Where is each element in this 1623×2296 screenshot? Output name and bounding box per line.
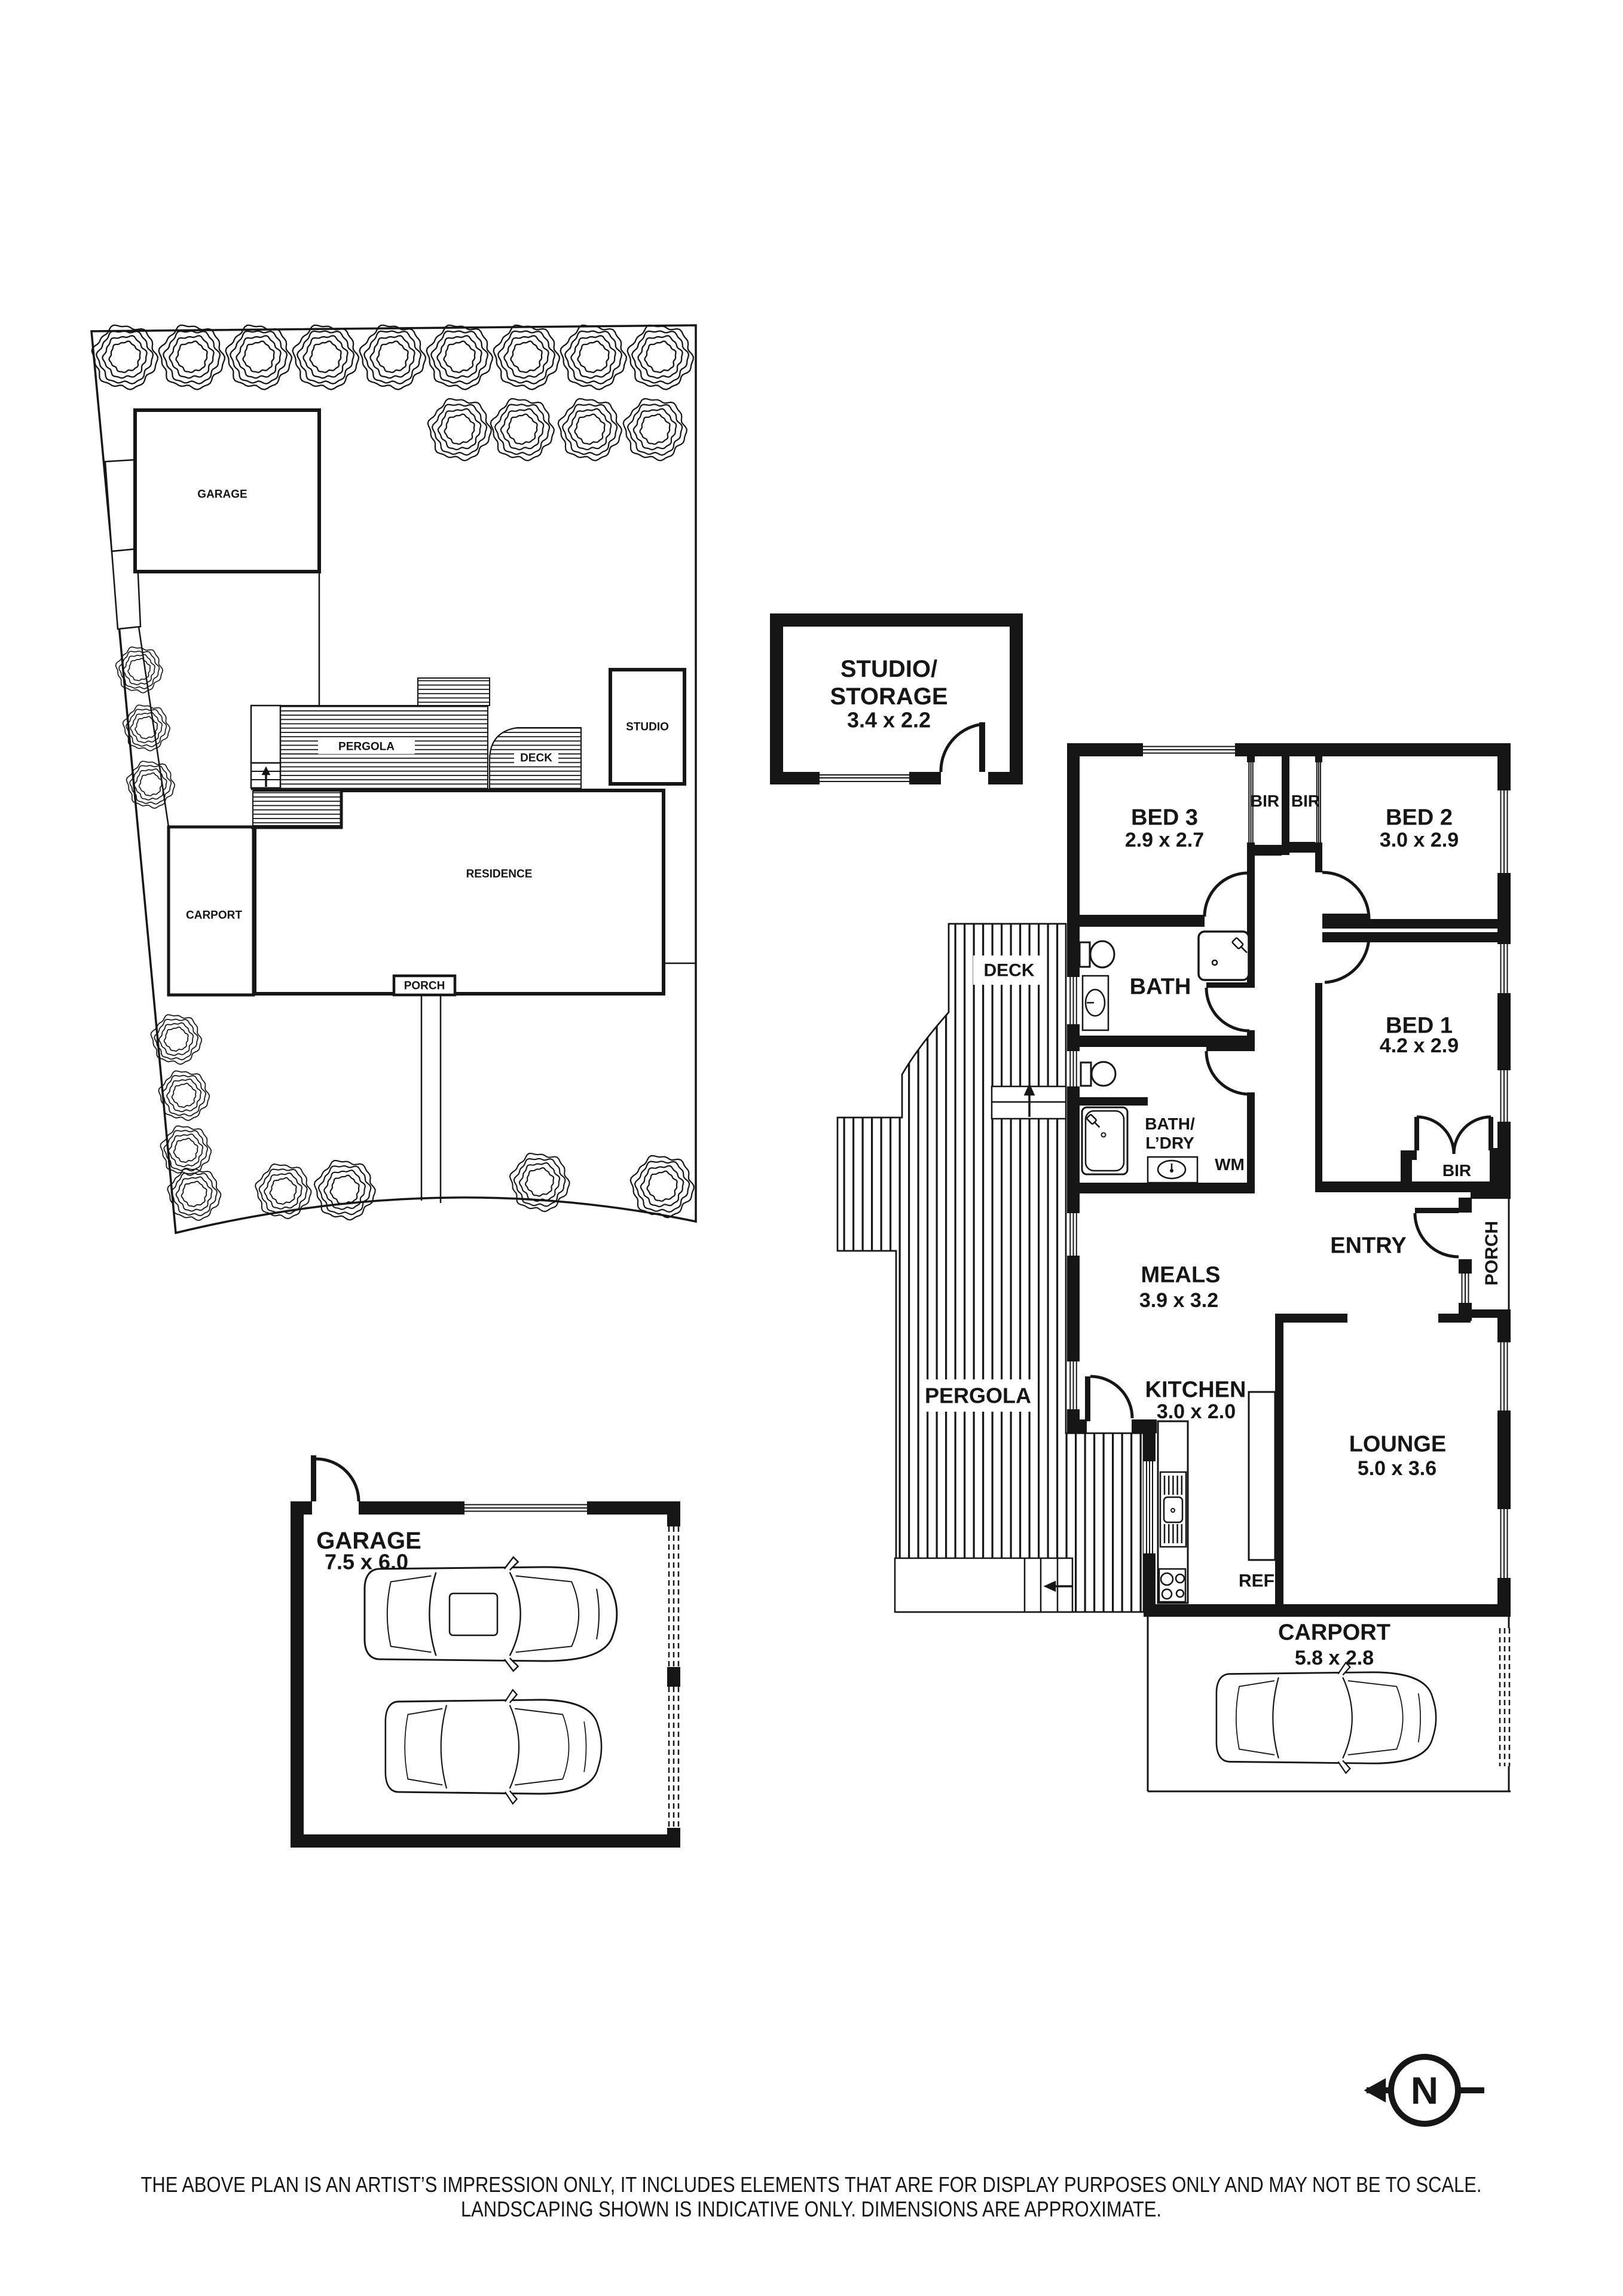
svg-text:3.0 x 2.0: 3.0 x 2.0 (1157, 1400, 1236, 1423)
svg-text:BIR: BIR (1251, 792, 1279, 810)
svg-text:STUDIO/: STUDIO/ (840, 656, 937, 682)
svg-text:5.0 x 3.6: 5.0 x 3.6 (1358, 1457, 1436, 1480)
svg-text:DECK: DECK (520, 752, 552, 765)
svg-text:REF: REF (1239, 1571, 1274, 1591)
svg-text:LOUNGE: LOUNGE (1349, 1431, 1447, 1457)
svg-text:BATH/: BATH/ (1145, 1115, 1195, 1133)
svg-text:PORCH: PORCH (1482, 1221, 1502, 1286)
svg-text:KITCHEN: KITCHEN (1145, 1377, 1246, 1402)
svg-text:THE ABOVE PLAN IS AN ARTIST’S: THE ABOVE PLAN IS AN ARTIST’S IMPRESSION… (141, 2172, 1482, 2197)
svg-text:CARPORT: CARPORT (1278, 1620, 1390, 1645)
svg-text:GARAGE: GARAGE (197, 488, 247, 501)
svg-text:3.9 x 3.2: 3.9 x 3.2 (1139, 1289, 1218, 1312)
svg-text:PERGOLA: PERGOLA (925, 1384, 1031, 1408)
svg-text:5.8 x 2.8: 5.8 x 2.8 (1295, 1647, 1374, 1669)
svg-text:RESIDENCE: RESIDENCE (466, 868, 533, 881)
svg-text:WM: WM (1215, 1155, 1245, 1174)
svg-text:DECK: DECK (983, 961, 1034, 981)
svg-text:PORCH: PORCH (404, 980, 445, 993)
svg-text:MEALS: MEALS (1141, 1262, 1221, 1287)
svg-text:BED 2: BED 2 (1386, 805, 1453, 830)
svg-text:4.2 x 2.9: 4.2 x 2.9 (1380, 1034, 1459, 1057)
svg-text:BIR: BIR (1442, 1161, 1471, 1180)
svg-text:LANDSCAPING SHOWN IS INDICATIV: LANDSCAPING SHOWN IS INDICATIVE ONLY. DI… (461, 2197, 1162, 2221)
svg-text:ENTRY: ENTRY (1330, 1233, 1406, 1258)
svg-text:BIR: BIR (1291, 792, 1320, 810)
svg-text:L’DRY: L’DRY (1145, 1134, 1194, 1152)
svg-text:PERGOLA: PERGOLA (338, 741, 395, 753)
svg-text:2.9 x 2.7: 2.9 x 2.7 (1125, 829, 1204, 851)
svg-text:STORAGE: STORAGE (830, 683, 947, 710)
svg-text:BED 3: BED 3 (1131, 805, 1198, 830)
svg-text:3.4 x 2.2: 3.4 x 2.2 (847, 708, 931, 732)
svg-text:N: N (1411, 2069, 1438, 2112)
svg-text:STUDIO: STUDIO (626, 721, 669, 734)
svg-text:CARPORT: CARPORT (186, 909, 242, 922)
svg-text:3.0 x 2.9: 3.0 x 2.9 (1380, 829, 1459, 851)
svg-text:BATH: BATH (1130, 974, 1191, 999)
